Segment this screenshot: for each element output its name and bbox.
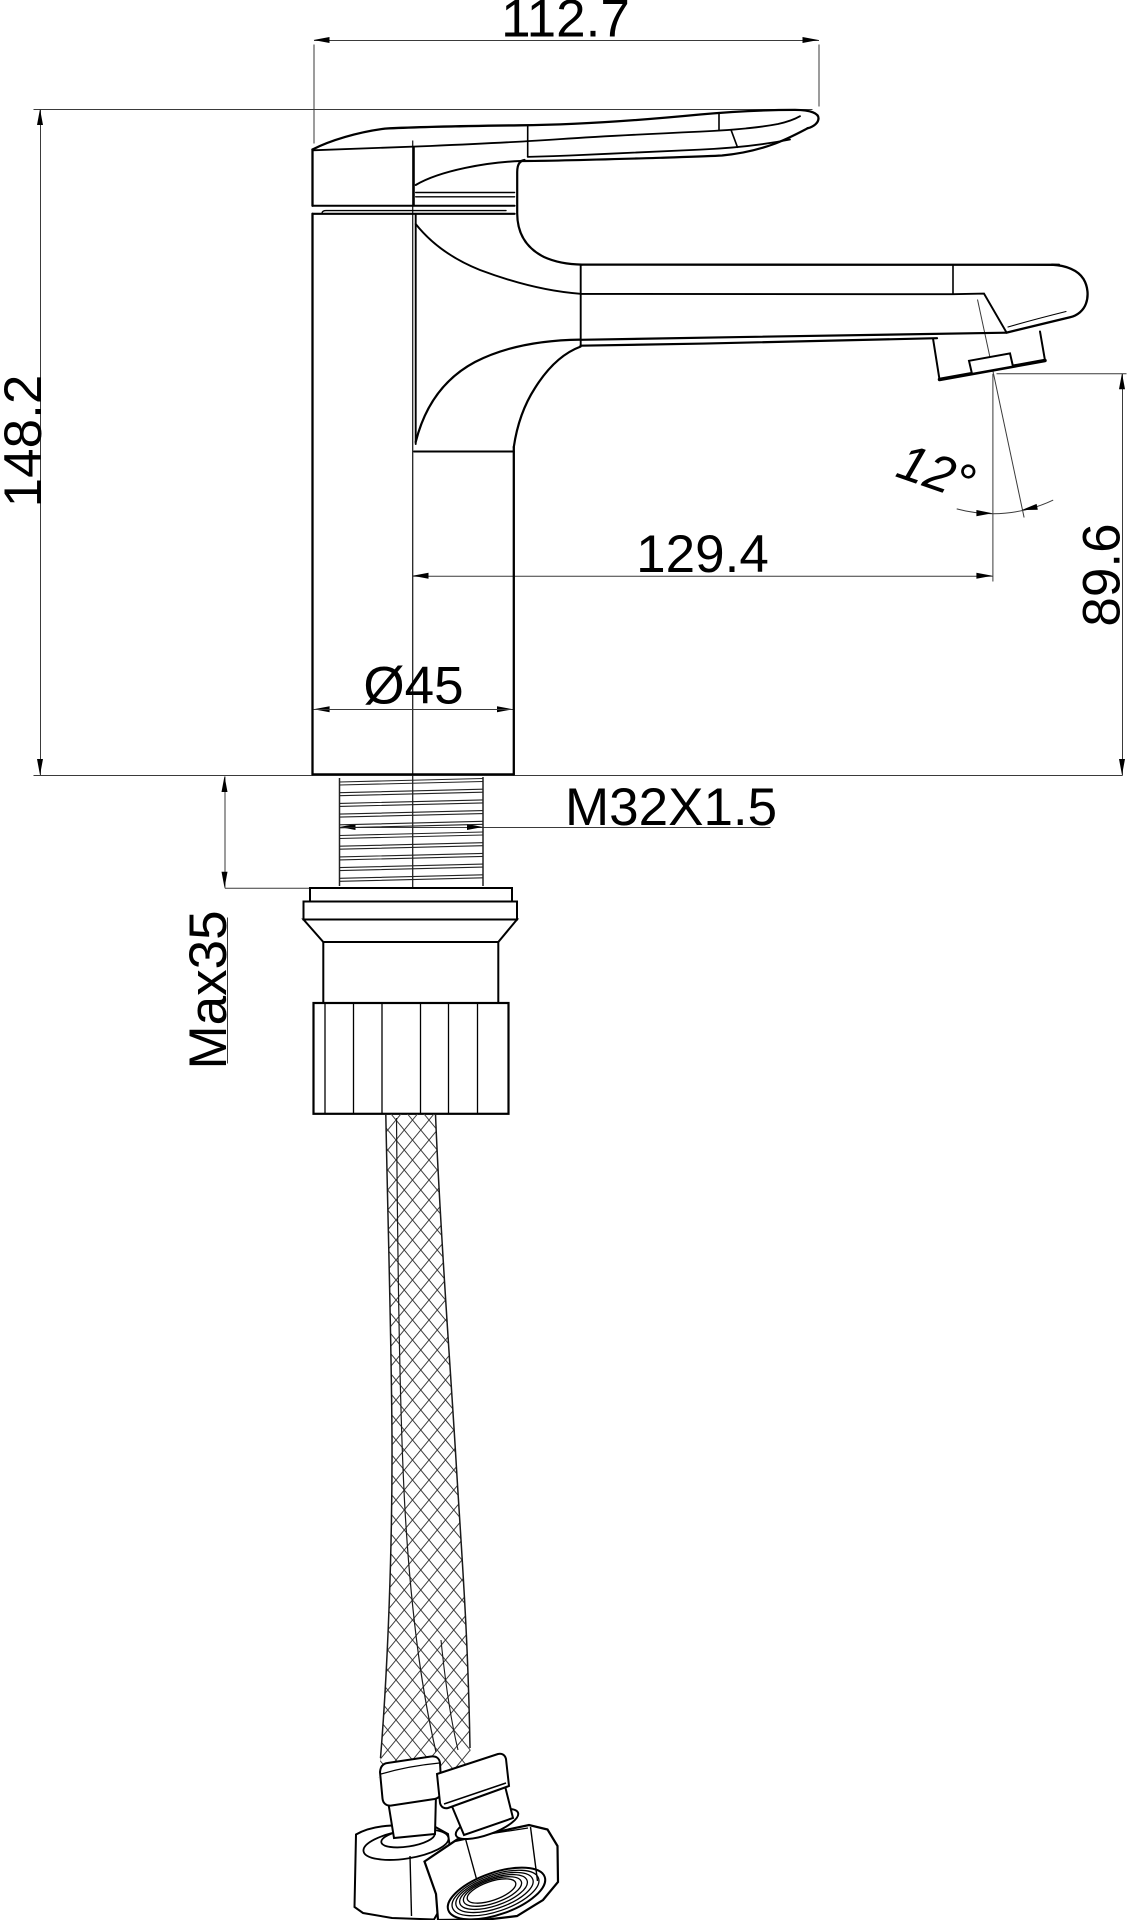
svg-text:Ø45: Ø45 — [363, 657, 463, 716]
svg-text:112.7: 112.7 — [501, 0, 630, 49]
svg-text:89.6: 89.6 — [1073, 523, 1128, 626]
svg-text:M32X1.5: M32X1.5 — [565, 778, 777, 837]
svg-text:129.4: 129.4 — [636, 525, 769, 584]
svg-text:148.2: 148.2 — [0, 375, 53, 508]
svg-text:Max35: Max35 — [179, 910, 238, 1069]
